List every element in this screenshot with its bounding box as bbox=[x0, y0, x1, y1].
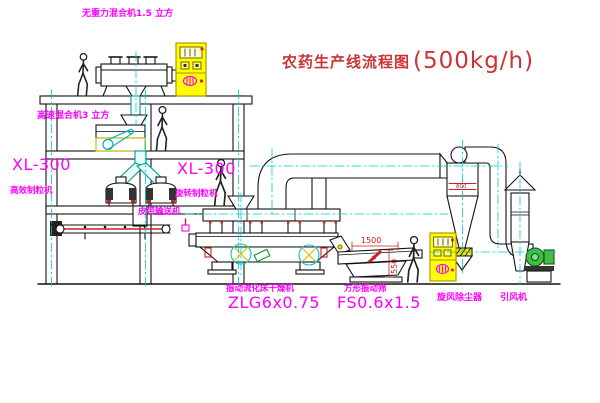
label-fan: 引风机 bbox=[500, 294, 527, 303]
label-granulator-left-model: XL-300 bbox=[12, 157, 71, 173]
label-granulator-left-name: 高效制粒机 bbox=[10, 187, 53, 196]
belt-conveyor bbox=[50, 221, 170, 239]
label-belt-conveyor: 皮带输送机 bbox=[138, 208, 181, 217]
label-gravity-mixer: 无重力混合机1.5 立方 bbox=[82, 10, 173, 19]
label-granulator-right-model: XL-300 bbox=[177, 161, 236, 177]
induced-draft-fan bbox=[524, 248, 554, 282]
exhaust-duct bbox=[258, 154, 449, 209]
label-cyclone: 旋风除尘器 bbox=[437, 294, 482, 303]
drawing-title: 农药生产线流程图 (500kg/h) bbox=[282, 48, 534, 74]
dimension-sieve-length: 1500 bbox=[361, 237, 381, 245]
label-granulator-right-name: 旋转制粒机 bbox=[175, 190, 218, 199]
person-figure bbox=[157, 107, 167, 150]
label-dryer-model: ZLG6x0.75 bbox=[228, 295, 320, 311]
person-figure bbox=[78, 54, 88, 96]
cad-canvas: 农药生产线流程图 (500kg/h) 无重力混合机1.5 立方 高速混合机3 立… bbox=[0, 0, 600, 403]
label-high-speed-mixer: 高速混合机3 立方 bbox=[37, 112, 109, 121]
drawing-title-text: 农药生产线流程图 bbox=[282, 51, 410, 72]
dimension-sieve-height: 550 bbox=[391, 259, 399, 274]
control-cabinet-right bbox=[430, 233, 456, 281]
control-cabinet-top bbox=[176, 43, 206, 96]
drawing-title-capacity: (500kg/h) bbox=[413, 48, 534, 74]
dimension-cyclone-band: 800 bbox=[456, 185, 467, 191]
granulator-left bbox=[106, 177, 136, 206]
label-sieve-model: FS0.6x1.5 bbox=[337, 295, 421, 311]
cyclone-outlet bbox=[451, 147, 467, 163]
